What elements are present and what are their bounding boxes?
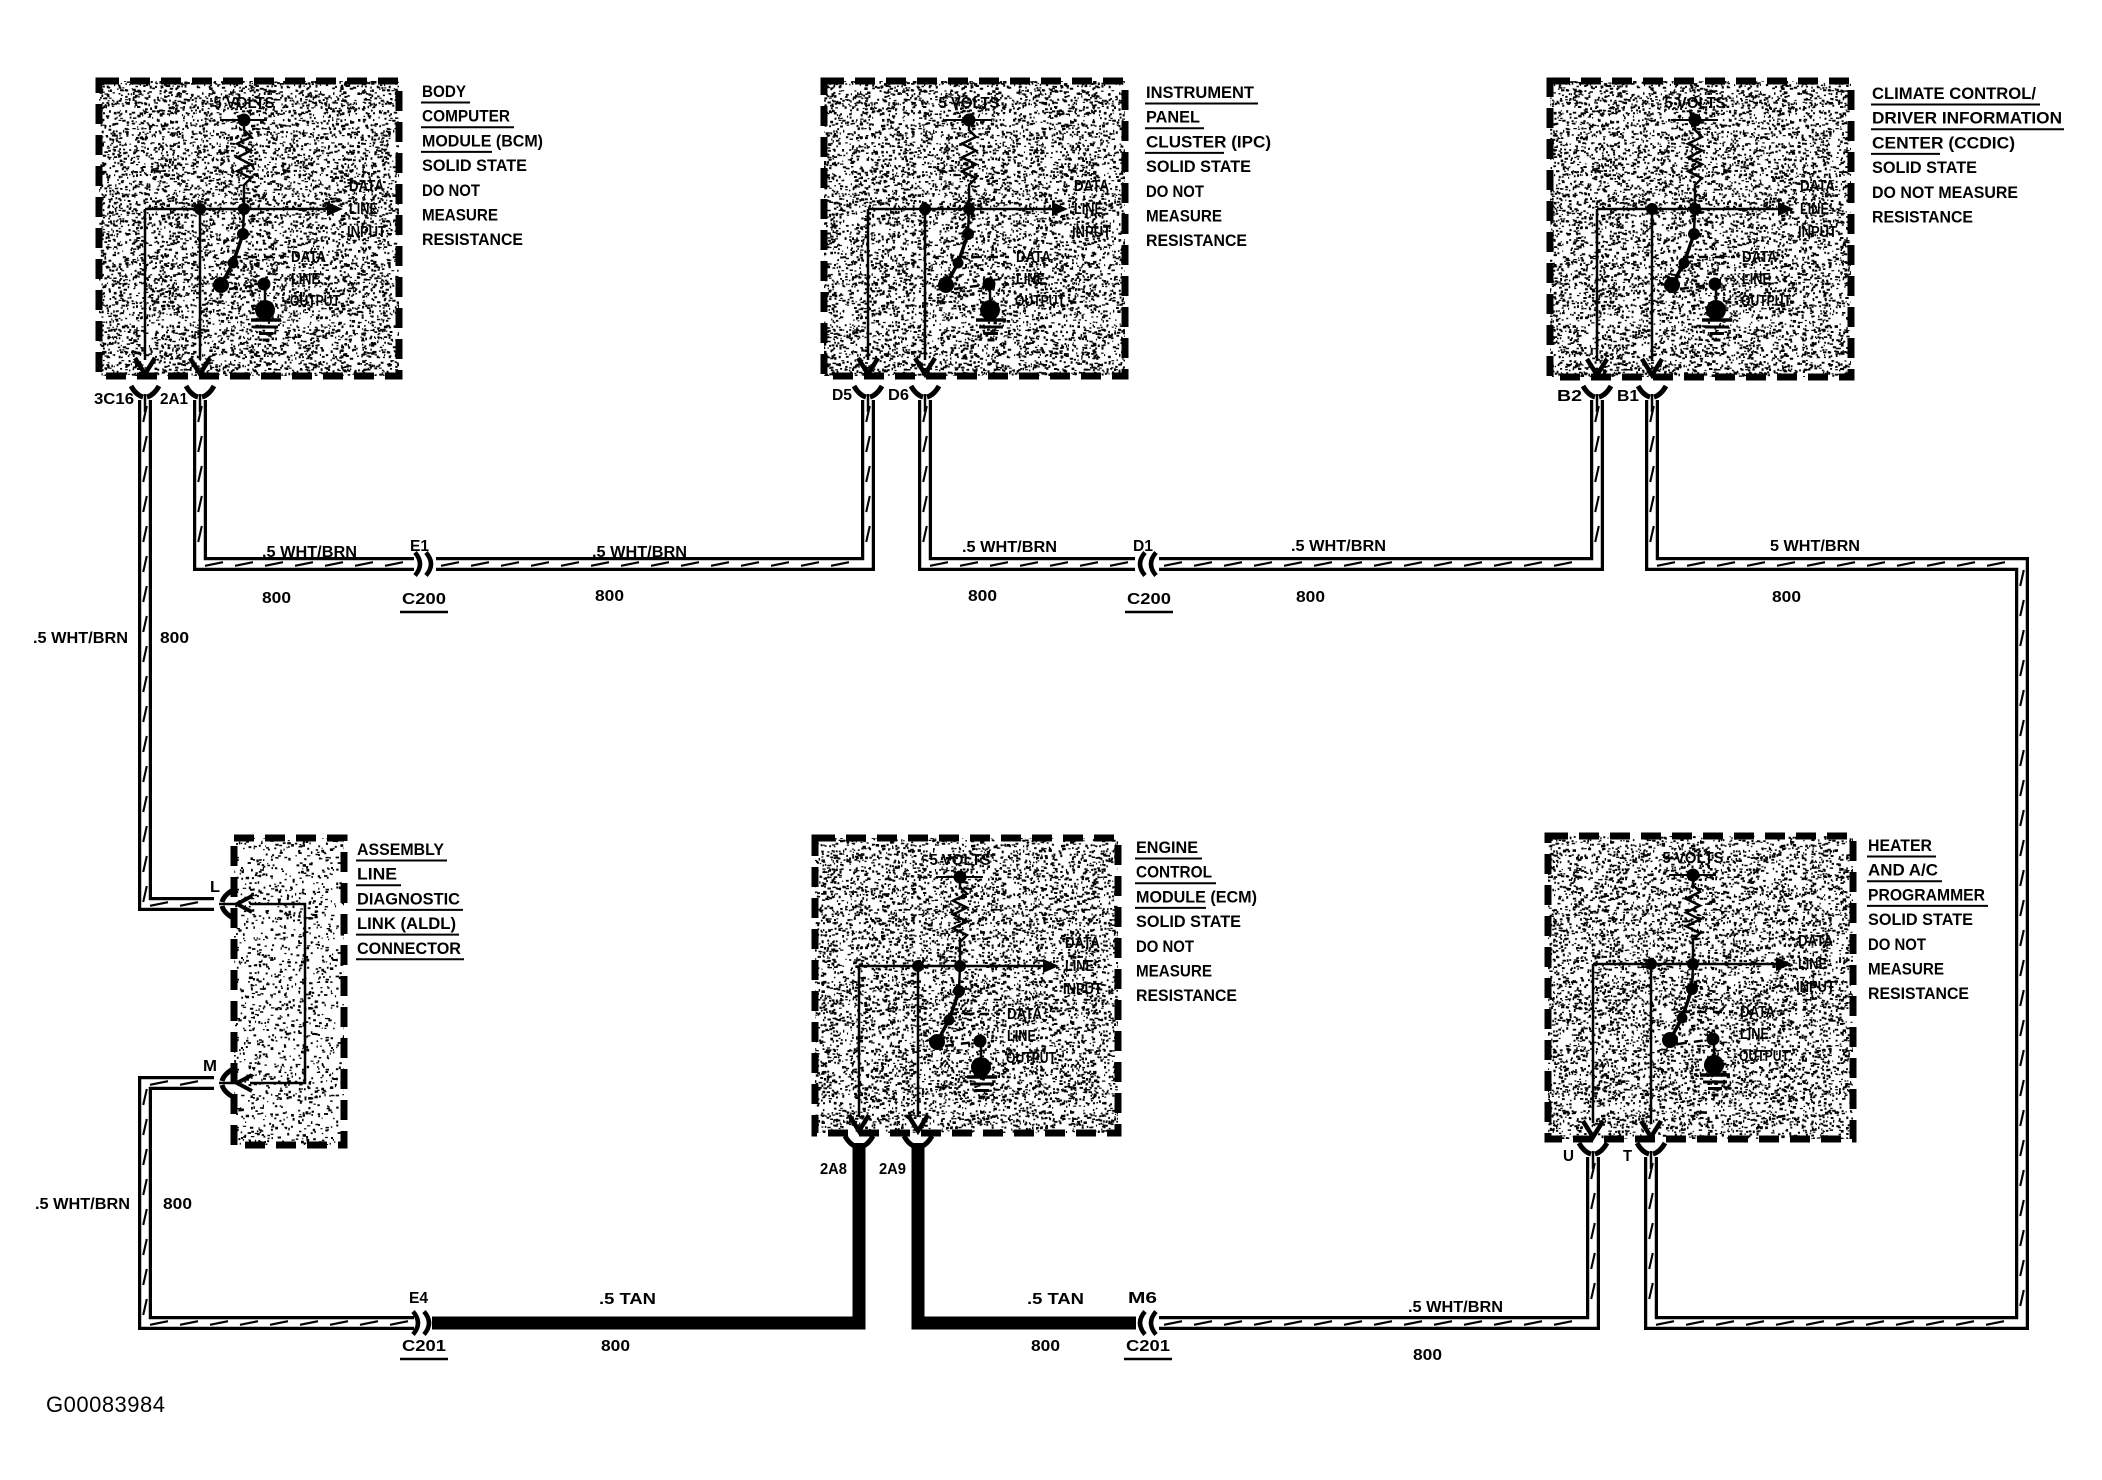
- svg-text:.5 TAN: .5 TAN: [1027, 1291, 1084, 1308]
- svg-text:INSTRUMENT: INSTRUMENT: [1146, 83, 1255, 102]
- svg-text:.5 WHT/BRN: .5 WHT/BRN: [33, 630, 128, 647]
- svg-text:B1: B1: [1617, 388, 1639, 405]
- svg-text:SOLID STATE: SOLID STATE: [1136, 912, 1241, 931]
- svg-text:AND A/C: AND A/C: [1868, 861, 1938, 880]
- svg-text:CLUSTER (IPC): CLUSTER (IPC): [1146, 132, 1271, 151]
- svg-text:LINE: LINE: [291, 271, 320, 288]
- svg-text:800: 800: [160, 630, 189, 647]
- svg-text:OUTPUT: OUTPUT: [1739, 1048, 1789, 1065]
- svg-text:DATA: DATA: [1007, 1006, 1042, 1023]
- svg-text:.5 WHT/BRN: .5 WHT/BRN: [1291, 538, 1386, 555]
- svg-text:CENTER (CCDIC): CENTER (CCDIC): [1872, 133, 2015, 152]
- svg-text:PANEL: PANEL: [1146, 108, 1200, 127]
- svg-text:800: 800: [163, 1196, 192, 1213]
- svg-text:800: 800: [968, 588, 997, 605]
- svg-text:CONTROL: CONTROL: [1136, 863, 1212, 882]
- svg-text:LINE: LINE: [1007, 1028, 1036, 1045]
- svg-text:5 WHT/BRN: 5 WHT/BRN: [1770, 538, 1860, 555]
- svg-text:.5 WHT/BRN: .5 WHT/BRN: [35, 1196, 130, 1213]
- svg-text:LINE: LINE: [1742, 271, 1771, 288]
- svg-text:DATA: DATA: [1074, 178, 1109, 195]
- svg-text:LINE: LINE: [349, 201, 378, 218]
- svg-text:DO NOT: DO NOT: [1868, 935, 1927, 954]
- svg-text:D6: D6: [888, 387, 909, 404]
- svg-text:DO NOT: DO NOT: [422, 181, 481, 200]
- svg-text:MEASURE: MEASURE: [1136, 962, 1212, 981]
- svg-text:DATA: DATA: [1016, 249, 1051, 266]
- svg-text:DATA: DATA: [1065, 935, 1100, 952]
- svg-text:L: L: [210, 879, 220, 896]
- svg-text:RESISTANCE: RESISTANCE: [1146, 231, 1247, 250]
- svg-text:2A8: 2A8: [820, 1161, 847, 1178]
- svg-text:.5 TAN: .5 TAN: [599, 1291, 656, 1308]
- svg-text:C201: C201: [402, 1338, 446, 1355]
- svg-text:OUTPUT: OUTPUT: [290, 293, 340, 310]
- svg-text:DRIVER INFORMATION: DRIVER INFORMATION: [1872, 109, 2062, 128]
- svg-text:T: T: [1623, 1148, 1633, 1165]
- svg-text:800: 800: [1772, 589, 1801, 606]
- svg-text:OUTPUT: OUTPUT: [1015, 293, 1065, 310]
- svg-text:LINE: LINE: [1740, 1026, 1769, 1043]
- svg-text:RESISTANCE: RESISTANCE: [1872, 208, 1973, 227]
- svg-text:.5 WHT/BRN: .5 WHT/BRN: [592, 544, 687, 561]
- svg-text:.5 WHT/BRN: .5 WHT/BRN: [1408, 1299, 1503, 1316]
- svg-text:MEASURE: MEASURE: [1146, 207, 1222, 226]
- svg-text:.5 WHT/BRN: .5 WHT/BRN: [962, 539, 1057, 556]
- svg-text:800: 800: [601, 1338, 630, 1355]
- svg-text:INPUT: INPUT: [1796, 979, 1835, 996]
- svg-text:800: 800: [1413, 1347, 1442, 1364]
- svg-text:INPUT: INPUT: [1072, 224, 1111, 241]
- svg-text:5 VOLTS: 5 VOLTS: [214, 95, 275, 112]
- svg-text:INPUT: INPUT: [1063, 981, 1102, 998]
- svg-text:PROGRAMMER: PROGRAMMER: [1868, 885, 1985, 904]
- svg-text:E4: E4: [409, 1290, 428, 1307]
- svg-text:LINE: LINE: [1074, 201, 1103, 218]
- svg-text:C201: C201: [1126, 1338, 1170, 1355]
- svg-text:RESISTANCE: RESISTANCE: [422, 230, 523, 249]
- svg-text:DO NOT: DO NOT: [1146, 182, 1205, 201]
- svg-text:LINE: LINE: [1798, 956, 1827, 973]
- svg-text:BODY: BODY: [422, 82, 467, 101]
- svg-text:DATA: DATA: [1798, 933, 1833, 950]
- svg-text:LINK (ALDL): LINK (ALDL): [357, 914, 456, 933]
- svg-text:5 VOLTS: 5 VOLTS: [1665, 95, 1726, 112]
- svg-text:800: 800: [1031, 1338, 1060, 1355]
- svg-text:.5 WHT/BRN: .5 WHT/BRN: [262, 544, 357, 561]
- svg-text:5 VOLTS: 5 VOLTS: [1663, 850, 1724, 867]
- svg-text:DATA: DATA: [349, 178, 384, 195]
- svg-text:LINE: LINE: [1016, 271, 1045, 288]
- svg-text:D1: D1: [1133, 538, 1153, 555]
- svg-text:800: 800: [262, 590, 291, 607]
- svg-text:MODULE (ECM): MODULE (ECM): [1136, 887, 1257, 906]
- svg-text:SOLID STATE: SOLID STATE: [422, 156, 527, 175]
- svg-text:SOLID STATE: SOLID STATE: [1146, 157, 1251, 176]
- svg-text:U: U: [1563, 1148, 1574, 1165]
- svg-text:LINE: LINE: [357, 865, 397, 884]
- svg-text:HEATER: HEATER: [1868, 836, 1932, 855]
- svg-text:OUTPUT: OUTPUT: [1741, 293, 1791, 310]
- svg-text:DIAGNOSTIC: DIAGNOSTIC: [357, 889, 460, 908]
- svg-text:LINE: LINE: [1800, 201, 1829, 218]
- svg-text:LINE: LINE: [1065, 958, 1094, 975]
- svg-text:5 VOLTS: 5 VOLTS: [930, 852, 991, 869]
- svg-text:DATA: DATA: [1800, 178, 1835, 195]
- svg-text:MEASURE: MEASURE: [1868, 960, 1944, 979]
- svg-text:DO NOT MEASURE: DO NOT MEASURE: [1872, 183, 2018, 202]
- svg-text:2A9: 2A9: [879, 1161, 906, 1178]
- svg-text:B2: B2: [1557, 388, 1582, 405]
- svg-text:ASSEMBLY: ASSEMBLY: [357, 840, 445, 859]
- svg-text:CONNECTOR: CONNECTOR: [357, 939, 461, 958]
- svg-text:SOLID STATE: SOLID STATE: [1872, 158, 1977, 177]
- svg-text:D5: D5: [832, 387, 852, 404]
- svg-text:RESISTANCE: RESISTANCE: [1868, 984, 1969, 1003]
- svg-text:DATA: DATA: [291, 249, 326, 266]
- svg-text:MEASURE: MEASURE: [422, 206, 498, 225]
- svg-text:2A1: 2A1: [160, 391, 188, 408]
- svg-text:5 VOLTS: 5 VOLTS: [939, 95, 1000, 112]
- svg-text:DATA: DATA: [1740, 1004, 1775, 1021]
- svg-text:OUTPUT: OUTPUT: [1006, 1050, 1056, 1067]
- svg-text:M6: M6: [1128, 1290, 1157, 1307]
- svg-text:M: M: [203, 1058, 217, 1075]
- svg-text:MODULE (BCM): MODULE (BCM): [422, 131, 543, 150]
- svg-text:ENGINE: ENGINE: [1136, 838, 1198, 857]
- svg-text:COMPUTER: COMPUTER: [422, 107, 510, 126]
- svg-text:RESISTANCE: RESISTANCE: [1136, 986, 1237, 1005]
- svg-text:800: 800: [1296, 589, 1325, 606]
- svg-text:E1: E1: [410, 538, 429, 555]
- svg-text:DATA: DATA: [1742, 249, 1777, 266]
- svg-text:G00083984: G00083984: [46, 1392, 166, 1417]
- svg-text:SOLID STATE: SOLID STATE: [1868, 910, 1973, 929]
- svg-text:CLIMATE CONTROL/: CLIMATE CONTROL/: [1872, 84, 2036, 103]
- svg-text:INPUT: INPUT: [347, 224, 386, 241]
- svg-text:800: 800: [595, 588, 624, 605]
- svg-text:DO NOT: DO NOT: [1136, 937, 1195, 956]
- svg-text:3C16: 3C16: [94, 391, 134, 408]
- svg-text:C200: C200: [1127, 591, 1171, 608]
- svg-text:INPUT: INPUT: [1798, 224, 1837, 241]
- svg-text:C200: C200: [402, 591, 446, 608]
